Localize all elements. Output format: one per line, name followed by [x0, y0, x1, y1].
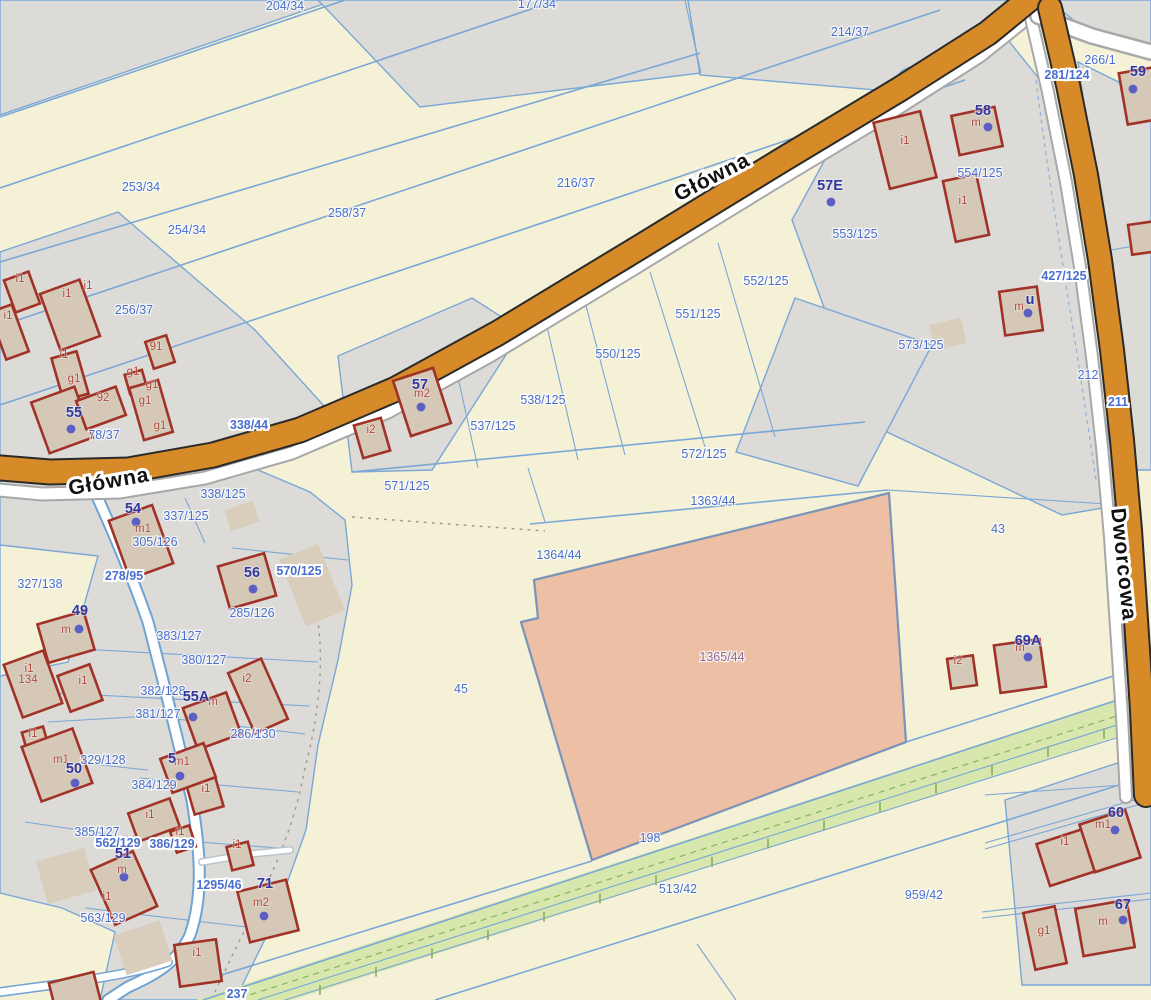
parcel-number-label: 266/1 — [1084, 53, 1115, 67]
address-point-dot — [75, 625, 84, 634]
building-type-label: i2 — [954, 655, 963, 667]
building-type-label: i1 — [84, 280, 93, 292]
parcel-number-label: 338/44 — [230, 418, 268, 432]
building-type-label: i1 — [202, 783, 211, 795]
building-type-label: m — [208, 696, 218, 708]
building-type-label: m — [1098, 916, 1108, 928]
parcel-number-label: 327/138 — [17, 577, 62, 591]
address-point-dot — [417, 403, 426, 412]
building-type-label: i1 — [4, 310, 13, 322]
house-number-label: u — [1026, 292, 1035, 308]
house-number-label: 58 — [975, 103, 991, 119]
house-number-label: 56 — [244, 565, 260, 581]
parcel-number-label: 550/125 — [595, 347, 640, 361]
house-number-label: 69A — [1015, 633, 1042, 649]
cadastral-map-viewport[interactable]: 204/34177/34214/37266/1281/124253/34254/… — [0, 0, 1151, 1000]
building-type-label: i1 — [901, 135, 910, 147]
parcel-number-label: 572/125 — [681, 447, 726, 461]
building-type-label: i1 — [29, 728, 38, 740]
address-point-dot — [189, 713, 198, 722]
building-type-label: m2 — [253, 897, 269, 909]
building-type-label: 91 — [150, 341, 163, 353]
parcel-number-label: 45 — [454, 682, 468, 696]
house-number-label: 59 — [1130, 64, 1146, 80]
parcel-number-label: 553/125 — [832, 227, 877, 241]
parcel-number-label: 281/124 — [1044, 68, 1089, 82]
address-point-dot — [260, 912, 269, 921]
address-point-dot — [827, 198, 836, 207]
parcel-number-label: 43 — [991, 522, 1005, 536]
building-type-label: i1 — [16, 273, 25, 285]
parcel-number-label: 204/34 — [266, 0, 304, 13]
parcel-number-label: 382/128 — [140, 684, 185, 698]
parcel-number-label: 1363/44 — [690, 494, 735, 508]
parcel-number-label: 237 — [227, 987, 248, 1000]
building-type-label: g1 — [154, 420, 167, 432]
parcel-number-label: 329/128 — [80, 753, 125, 767]
building-type-label: m — [117, 864, 127, 876]
parcel-number-label: 959/42 — [905, 888, 943, 902]
parcel-number-label: 258/37 — [328, 206, 366, 220]
house-number-label: 57 — [412, 377, 428, 393]
parcel-number-label: 211 — [1108, 395, 1128, 409]
address-point-dot — [984, 123, 993, 132]
building-type-label: 134 — [18, 674, 38, 686]
address-point-dot — [67, 425, 76, 434]
address-point-dot — [1024, 653, 1033, 662]
parcel-number-label: 216/37 — [557, 176, 595, 190]
house-number-label: 54 — [125, 501, 141, 517]
parcel-number-label: 285/126 — [229, 606, 274, 620]
parcel-number-label: 427/125 — [1041, 269, 1086, 283]
parcel-number-label: 551/125 — [675, 307, 720, 321]
address-point-dot — [1024, 309, 1033, 318]
building-type-label: i1 — [176, 826, 185, 838]
parcel-number-label: 552/125 — [743, 274, 788, 288]
parcel-number-label: 78/37 — [88, 428, 119, 442]
building-type-label: m1 — [135, 523, 151, 535]
parcel-number-label: 256/37 — [115, 303, 153, 317]
building-type-label: i1 — [63, 288, 72, 300]
address-point-dot — [71, 779, 80, 788]
parcel-number-label: 278/95 — [105, 569, 143, 583]
cadastral-map-canvas[interactable]: 204/34177/34214/37266/1281/124253/34254/… — [0, 0, 1151, 1000]
building-type-label: i1 — [79, 675, 88, 687]
parcel-number-label: 554/125 — [957, 166, 1002, 180]
parcel-number-label: 384/129 — [131, 778, 176, 792]
building-footprint — [49, 972, 101, 1000]
house-number-label: 55 — [66, 405, 82, 421]
parcel-number-label: 538/125 — [520, 393, 565, 407]
house-number-label: 57E — [817, 178, 843, 194]
house-number-label: 60 — [1108, 805, 1124, 821]
parcel-number-label: 571/125 — [384, 479, 429, 493]
parcel-number-label: 513/42 — [659, 882, 697, 896]
address-point-dot — [249, 585, 258, 594]
parcel-number-label: 570/125 — [276, 564, 321, 578]
parcel-number-label: 337/125 — [163, 509, 208, 523]
parcel-number-label: 573/125 — [898, 338, 943, 352]
parcel-number-label: 386/129 — [149, 837, 194, 851]
address-point-dot — [1129, 85, 1138, 94]
gray-area — [0, 0, 335, 115]
parcel-number-label: 381/127 — [135, 707, 180, 721]
building-type-label: i1 — [959, 195, 968, 207]
parcel-number-label: 338/125 — [200, 487, 245, 501]
house-number-label: 55A — [183, 689, 210, 705]
building-type-label: i1 — [233, 839, 242, 851]
address-point-dot — [1119, 916, 1128, 925]
parcel-number-label: 1364/44 — [536, 548, 581, 562]
building-type-label: i1 — [103, 891, 112, 903]
house-number-label: 67 — [1115, 897, 1131, 913]
house-number-label: 5 — [168, 751, 176, 767]
building-type-label: 92 — [97, 392, 110, 404]
parcel-number-label: 563/129 — [80, 911, 125, 925]
parcel-number-label: 177/34 — [518, 0, 556, 11]
building-type-label: i2 — [243, 673, 252, 685]
building-type-label: i1 — [193, 947, 202, 959]
building-type-label: m — [1014, 301, 1024, 313]
building-type-label: g1 — [139, 395, 152, 407]
parcel-number-label: 537/125 — [470, 419, 515, 433]
house-number-label: 50 — [66, 761, 82, 777]
parcel-number-label: 305/126 — [132, 535, 177, 549]
building-type-label: i1 — [146, 809, 155, 821]
parcel-number-label: 254/34 — [168, 223, 206, 237]
building-type-label: m — [61, 624, 71, 636]
building-type-label: m1 — [174, 756, 190, 768]
parcel-number-label: 1295/46 — [196, 878, 241, 892]
building-type-label: i1 — [1061, 836, 1070, 848]
building-type-label: g1 — [146, 379, 159, 391]
address-point-dot — [176, 772, 185, 781]
building-type-label: i2 — [367, 424, 376, 436]
parcel-number-label: 212 — [1078, 368, 1099, 382]
house-number-label: 51 — [115, 846, 131, 862]
address-point-dot — [1111, 826, 1120, 835]
house-number-label: 71 — [257, 876, 273, 892]
building-footprint — [1128, 221, 1151, 254]
building-type-label: g1 — [1038, 925, 1051, 937]
building-type-label: i1 — [60, 349, 69, 361]
parcel-number-label: 380/127 — [181, 653, 226, 667]
parcel-number-label: 383/127 — [156, 629, 201, 643]
parcel-number-label: 214/37 — [831, 25, 869, 39]
building-type-label: g1 — [127, 366, 140, 378]
building-type-label: g1 — [68, 373, 81, 385]
parcel-number-label: 286/130 — [230, 727, 275, 741]
parcel-number-label: 253/34 — [122, 180, 160, 194]
house-number-label: 49 — [72, 603, 88, 619]
parcel-number-label: 198 — [640, 831, 661, 845]
parcel-number-label: 1365/44 — [699, 650, 744, 664]
